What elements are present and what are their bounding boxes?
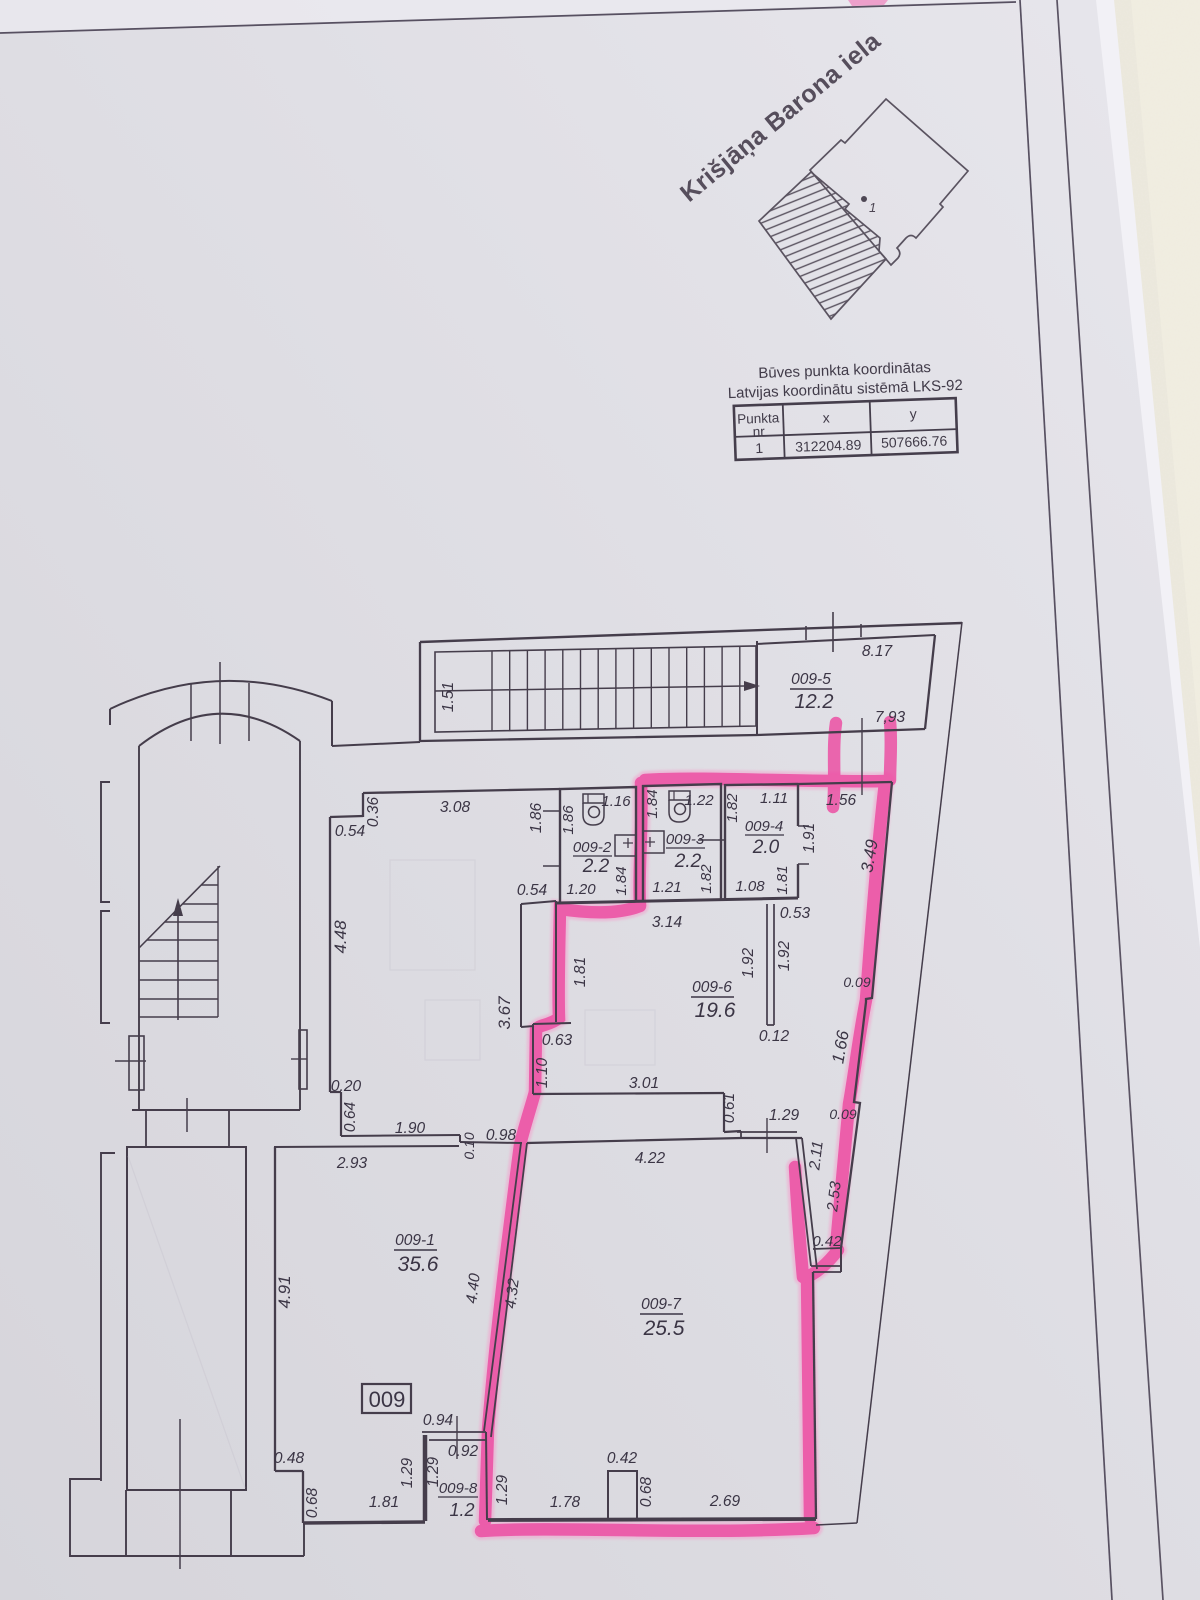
- svg-text:0.68: 0.68: [304, 1488, 321, 1519]
- svg-text:1.90: 1.90: [395, 1120, 426, 1137]
- svg-text:1.92: 1.92: [740, 948, 757, 979]
- svg-text:1.29: 1.29: [399, 1458, 416, 1489]
- svg-text:1.20: 1.20: [566, 881, 596, 898]
- svg-text:0.09: 0.09: [829, 1106, 856, 1122]
- svg-text:1.81: 1.81: [572, 957, 589, 987]
- svg-text:0.36: 0.36: [365, 797, 382, 828]
- svg-text:3.67: 3.67: [495, 996, 514, 1030]
- svg-text:1.2: 1.2: [449, 1500, 474, 1520]
- svg-text:1.22: 1.22: [684, 792, 714, 809]
- svg-text:009-7: 009-7: [641, 1296, 682, 1313]
- svg-text:0.20: 0.20: [331, 1078, 362, 1095]
- svg-text:0.94: 0.94: [423, 1412, 454, 1429]
- svg-text:2.11: 2.11: [806, 1140, 827, 1172]
- svg-text:0.53: 0.53: [780, 905, 811, 922]
- svg-text:12.2: 12.2: [795, 691, 834, 713]
- svg-text:7,93: 7,93: [875, 709, 906, 726]
- svg-text:0.42: 0.42: [812, 1233, 842, 1250]
- svg-text:35.6: 35.6: [398, 1253, 439, 1276]
- svg-text:0.68: 0.68: [638, 1477, 655, 1508]
- svg-text:4.48: 4.48: [331, 920, 350, 954]
- svg-text:0.61: 0.61: [721, 1093, 738, 1123]
- svg-text:009-2: 009-2: [573, 839, 612, 856]
- svg-text:1: 1: [755, 440, 764, 456]
- svg-text:3.01: 3.01: [629, 1075, 659, 1092]
- svg-text:2.0: 2.0: [752, 837, 780, 858]
- svg-text:009-5: 009-5: [791, 671, 831, 688]
- svg-text:4.22: 4.22: [635, 1150, 666, 1167]
- svg-text:0.92: 0.92: [448, 1443, 479, 1460]
- svg-text:009: 009: [369, 1387, 406, 1412]
- svg-text:009-1: 009-1: [395, 1232, 435, 1249]
- svg-text:19.6: 19.6: [695, 999, 736, 1022]
- svg-text:2.69: 2.69: [709, 1493, 741, 1510]
- svg-text:009-8: 009-8: [439, 1480, 478, 1497]
- svg-text:009-6: 009-6: [692, 979, 732, 996]
- svg-text:0.64: 0.64: [342, 1102, 359, 1133]
- svg-text:1.86: 1.86: [560, 805, 577, 835]
- svg-text:1.82: 1.82: [698, 864, 715, 894]
- svg-text:1.84: 1.84: [613, 866, 630, 895]
- svg-text:1.16: 1.16: [601, 793, 631, 810]
- svg-text:1.29: 1.29: [769, 1107, 800, 1124]
- svg-text:y: y: [909, 406, 917, 422]
- svg-text:x: x: [822, 410, 830, 426]
- svg-text:4.91: 4.91: [275, 1275, 294, 1308]
- svg-text:0.09: 0.09: [843, 974, 870, 990]
- svg-text:1.91: 1.91: [801, 823, 818, 853]
- svg-text:0.48: 0.48: [274, 1450, 305, 1467]
- svg-text:25.5: 25.5: [643, 1317, 685, 1340]
- svg-text:1.21: 1.21: [652, 879, 681, 896]
- svg-text:2.2: 2.2: [582, 856, 610, 877]
- svg-text:312204.89: 312204.89: [795, 436, 862, 454]
- svg-text:1.08: 1.08: [735, 878, 765, 895]
- svg-text:8.17: 8.17: [862, 643, 894, 660]
- svg-text:1.82: 1.82: [724, 793, 741, 823]
- svg-text:1: 1: [869, 200, 876, 215]
- svg-text:0.63: 0.63: [542, 1032, 573, 1049]
- svg-text:009-3: 009-3: [666, 831, 705, 848]
- svg-text:1.92: 1.92: [776, 941, 793, 972]
- svg-text:1.81: 1.81: [774, 865, 791, 894]
- svg-text:0.98: 0.98: [486, 1127, 517, 1144]
- svg-text:0.42: 0.42: [607, 1450, 638, 1467]
- svg-text:1.29: 1.29: [494, 1475, 511, 1506]
- svg-text:0.54: 0.54: [517, 882, 548, 899]
- svg-text:nr: nr: [752, 424, 765, 439]
- svg-text:0.12: 0.12: [759, 1028, 790, 1045]
- svg-text:1.86: 1.86: [528, 803, 545, 834]
- svg-text:009-4: 009-4: [745, 818, 783, 835]
- svg-text:2.93: 2.93: [336, 1155, 368, 1172]
- svg-text:1.81: 1.81: [369, 1494, 399, 1511]
- svg-text:1.51: 1.51: [440, 682, 457, 712]
- svg-text:3.14: 3.14: [652, 914, 683, 931]
- svg-text:3.08: 3.08: [440, 799, 471, 816]
- svg-text:0.10: 0.10: [461, 1132, 477, 1159]
- svg-text:1.11: 1.11: [760, 790, 788, 807]
- svg-text:1.84: 1.84: [644, 789, 661, 818]
- svg-text:1.10: 1.10: [534, 1058, 551, 1089]
- svg-text:507666.76: 507666.76: [881, 432, 948, 450]
- svg-text:0.54: 0.54: [335, 823, 366, 840]
- svg-text:1.29: 1.29: [425, 1457, 442, 1488]
- svg-text:1.56: 1.56: [826, 792, 857, 809]
- svg-text:1.78: 1.78: [550, 1494, 581, 1511]
